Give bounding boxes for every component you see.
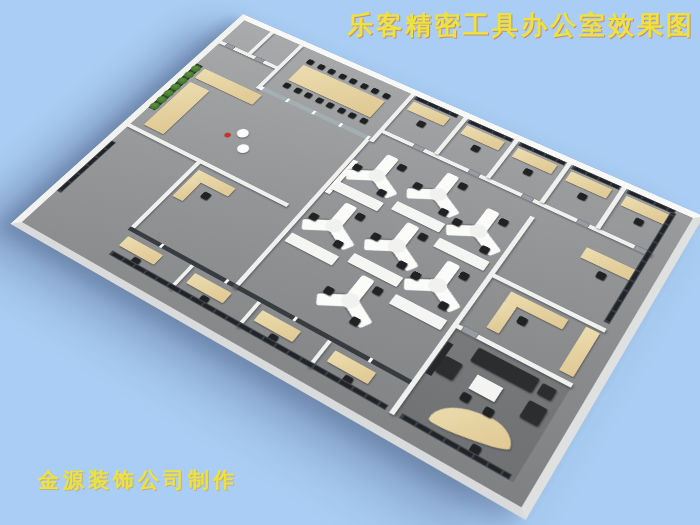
meeting-chair bbox=[337, 73, 347, 80]
meeting-chair bbox=[336, 107, 346, 114]
office-door bbox=[520, 193, 535, 203]
meeting-chair bbox=[381, 93, 391, 100]
l-desk bbox=[486, 301, 517, 334]
office-building-floorplan bbox=[10, 14, 700, 520]
office-chair bbox=[522, 168, 534, 177]
studio-credit: 金源装饰公司制作 bbox=[38, 466, 238, 494]
office-chair bbox=[354, 212, 366, 221]
office-chair bbox=[470, 144, 482, 153]
meeting-chair bbox=[293, 87, 303, 94]
meeting-chair bbox=[359, 83, 369, 90]
window-strip bbox=[57, 140, 117, 193]
tall-cabinet bbox=[559, 327, 600, 378]
red-accent-object bbox=[223, 132, 232, 138]
office-chair bbox=[416, 232, 429, 242]
left-office-wall bbox=[131, 162, 201, 229]
meeting-chair bbox=[348, 78, 358, 85]
office-desk bbox=[580, 247, 636, 280]
office-chair bbox=[633, 217, 645, 227]
office-chair bbox=[576, 192, 588, 201]
meeting-chair bbox=[303, 92, 313, 99]
office-chair bbox=[516, 315, 529, 326]
render-title: 乐客精密工具办公室效果图 bbox=[347, 8, 695, 43]
meeting-chair bbox=[305, 59, 315, 66]
office-chair bbox=[371, 286, 384, 297]
meeting-chair bbox=[347, 112, 357, 119]
office-chair bbox=[200, 191, 212, 200]
round-stool bbox=[234, 127, 251, 139]
meeting-chair bbox=[370, 88, 380, 95]
meeting-chair bbox=[316, 64, 326, 71]
office-chair bbox=[415, 120, 426, 128]
office-chair bbox=[458, 271, 471, 281]
meeting-chair bbox=[359, 117, 369, 124]
office-chair bbox=[595, 271, 608, 281]
credenza bbox=[195, 69, 262, 105]
meeting-chair bbox=[314, 97, 324, 104]
render-canvas: 乐客精密工具办公室效果图 金源装饰公司制作 bbox=[0, 0, 700, 525]
meeting-chair bbox=[282, 82, 292, 89]
office-door bbox=[575, 218, 590, 228]
office-chair bbox=[497, 218, 509, 228]
meeting-chair bbox=[325, 102, 335, 109]
office-chair bbox=[457, 182, 469, 191]
round-stool bbox=[235, 143, 252, 155]
office-chair bbox=[396, 163, 408, 172]
meeting-chair bbox=[327, 68, 337, 75]
cell-divider-wall bbox=[248, 32, 274, 55]
